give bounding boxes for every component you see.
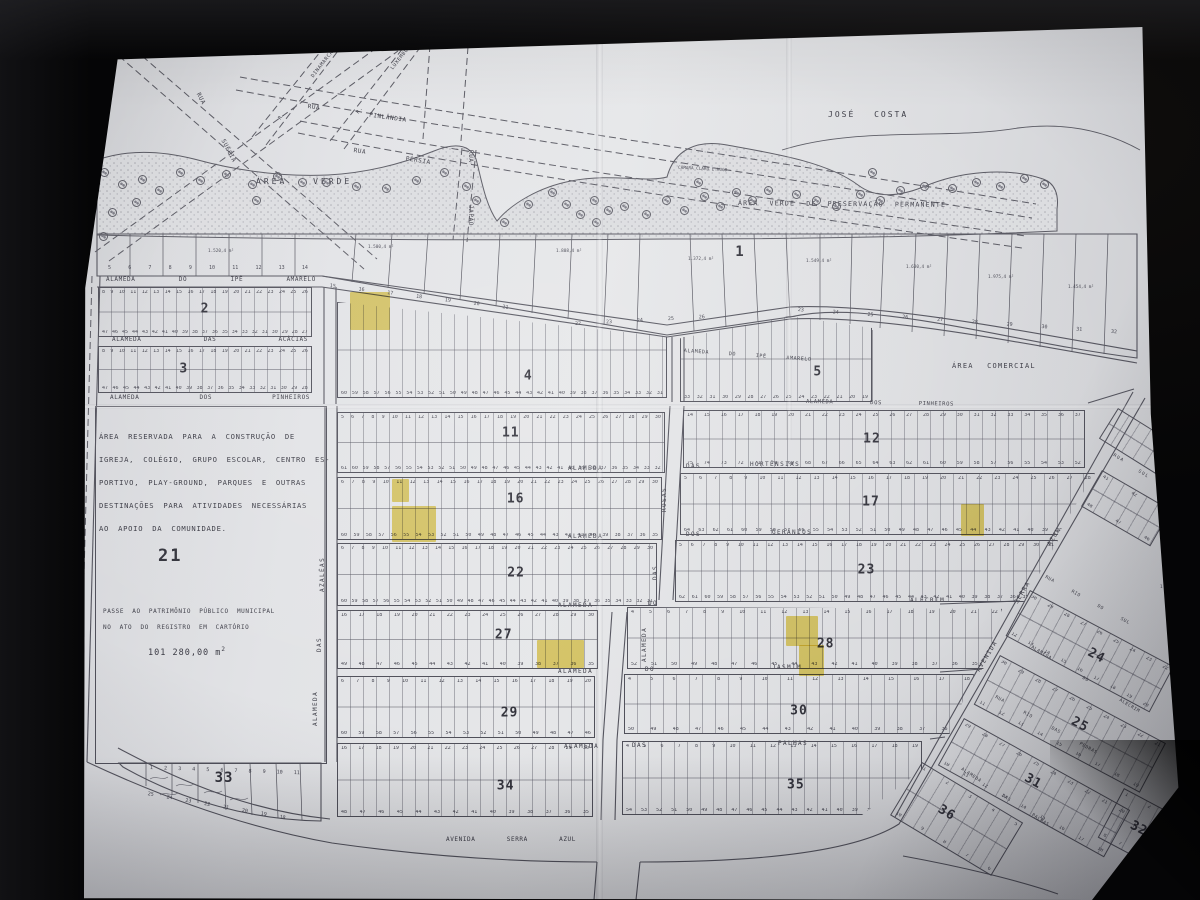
street-label-alameda-das-acacias: ALAMEDADASACÁCIAS	[112, 337, 308, 343]
lot-numbers: 161718192021222324252627282930	[341, 746, 589, 751]
lot-numbers: 123	[1124, 792, 1174, 822]
block-3: 3891011121314151617181920212223242526474…	[98, 346, 312, 393]
tree-icon	[792, 190, 801, 199]
lot-numbers: 333231302928272625242322212019	[684, 395, 868, 400]
lot-numbers: 567891011121314	[108, 266, 308, 271]
lot-numbers: 6789101112131415161718192021222324252627…	[341, 480, 658, 485]
tree-icon	[604, 206, 613, 215]
block-number: 24	[1085, 645, 1108, 667]
tree-icon	[732, 188, 741, 197]
tree-icon	[868, 168, 877, 177]
block-number-1: 1	[735, 244, 744, 260]
lot-numbers: 45678910111213141516171819	[626, 744, 918, 749]
block-number: 17	[862, 494, 880, 509]
highlighted-lot	[392, 506, 436, 542]
lot-numbers: 6059585756555453525150494847464544434241…	[341, 391, 663, 396]
street-label-rua-ne-sul: SUL	[1137, 470, 1150, 480]
lot-numbers: 4847464544434241403938373635	[341, 810, 589, 815]
preservation-area-label: ÁREA VERDE DE PRESERVAÇÃO PERMANENTE	[738, 199, 946, 209]
block-23: 2356789101112131415161718192021222324252…	[675, 540, 1058, 602]
tree-icon	[856, 190, 865, 199]
tree-icon	[896, 186, 905, 195]
lot-area-label: 1.454,4 m²	[1068, 286, 1094, 290]
tree-icon	[100, 168, 109, 177]
street-label-rua-suecia: RUASUÉCIA	[195, 92, 237, 164]
highlighted-lot	[786, 616, 818, 646]
registry-note-line: PASSE AO PATRIMÔNIO PÚBLICO MUNICIPAL	[103, 608, 275, 615]
block-number: 3	[179, 361, 188, 376]
block-number: 27	[495, 627, 513, 642]
highlighted-lot	[799, 645, 824, 676]
lot-numbers: 6059585756555453525150494847464544434241…	[341, 599, 653, 604]
lot-numbers: 5453525150494847464544434241403938373635	[626, 808, 918, 813]
block-22: 2267891011121314151617181920212223242526…	[337, 543, 657, 606]
tree-icon	[716, 202, 725, 211]
lot-numbers: 2524232221201918	[147, 792, 286, 821]
street-label-alameda-das-azaleas-3: ALAMEDA	[313, 691, 319, 726]
block-number: 4	[524, 369, 533, 384]
tree-icon	[248, 180, 257, 189]
tree-icon	[680, 206, 689, 215]
lot-numbers: 2223242526	[575, 315, 705, 327]
highlighted-lot	[961, 504, 984, 536]
tree-icon	[590, 196, 599, 205]
tree-icon	[462, 182, 471, 191]
block-number: 31	[1022, 770, 1045, 792]
block-number: 32	[1127, 818, 1150, 840]
block-number: 16	[507, 491, 525, 506]
block-2: 2891011121314151617181920212223242526474…	[98, 287, 312, 337]
reserved-text-line: IGREJA, COLÉGIO, GRUPO ESCOLAR, CENTRO E…	[99, 455, 330, 464]
street-label-alameda-do-ipe-amarelo-w: ALAMEDADOIPÊAMARELO	[106, 277, 316, 283]
tree-icon	[108, 208, 117, 217]
tree-icon	[500, 218, 509, 227]
tree-icon	[524, 200, 533, 209]
lot-numbers: 1415161718192021222324252627282930313233…	[687, 413, 1081, 418]
tree-icon	[273, 172, 282, 181]
lot-numbers: 6059585756555453525150494847464544434241…	[341, 533, 658, 538]
block-number: 30	[790, 703, 808, 718]
lot-area-label: 1.520,4 m²	[208, 250, 234, 254]
tree-icon	[99, 232, 108, 241]
street-label-rua-luxemburgo: R.LUXEMBURGO	[356, 40, 417, 116]
highlighted-lot	[392, 479, 409, 502]
lot-numbers: 5678910111213141516171819202122232425262…	[679, 543, 1054, 548]
tree-icon	[972, 178, 981, 187]
photo-of-subdivision-map: JOSÉ COSTA ÁREA VERDE ÁREA VERDE DE PRES…	[0, 0, 1200, 900]
lot-numbers: 8765	[1102, 833, 1152, 863]
block-number: 23	[858, 562, 876, 577]
commercial-area-label: ÁREA COMERCIAL	[952, 362, 1036, 370]
lot-numbers: 6463626160595857565554535251504948474645…	[684, 528, 1091, 533]
tree-icon	[176, 168, 185, 177]
tree-icon	[812, 196, 821, 205]
block-16: 1667891011121314151617181920212223242526…	[337, 477, 662, 540]
block-number: 5	[813, 365, 822, 380]
block-17: 1756789101112131415161718192021222324252…	[680, 473, 1095, 535]
block-number: 11	[502, 426, 520, 441]
tree-icon	[440, 168, 449, 177]
lot-numbers: 605958575655545352515049484746	[341, 731, 591, 736]
area-measurement: 101 280,00 m2	[148, 646, 226, 658]
boundary-owner-label: CÂMARA CLARO E HUGO	[678, 167, 727, 174]
tree-icon	[155, 186, 164, 195]
tree-icon	[694, 178, 703, 187]
block-5: 5333231302928272625242322212019	[680, 316, 872, 402]
street-label-alameda-das-azaleas-2: DAS	[317, 637, 323, 652]
tree-icon	[352, 182, 361, 191]
reserved-text-line: PORTIVO, PLAY-GROUND, PARQUES E OUTRAS	[99, 478, 306, 487]
lot-area-label: 1.500,4 m²	[368, 246, 394, 250]
lot-numbers: 6789101112131415161718192021222324252627…	[341, 546, 653, 551]
lot-numbers: 45678910111213141516171819202122	[631, 610, 998, 615]
lot-numbers: 7574737271706968676665646362616059585756…	[687, 461, 1081, 466]
block-number: 22	[507, 566, 525, 581]
tree-icon	[1040, 180, 1049, 189]
lot-area-label: 1.808,4 m²	[556, 250, 582, 254]
tree-icon	[196, 176, 205, 185]
lot-numbers: 4746454443424140393837363534333231302928…	[102, 330, 308, 335]
tree-icon	[642, 210, 651, 219]
block-number: 12	[863, 432, 881, 447]
tree-icon	[764, 186, 773, 195]
street-label-alameda-das-rosas-1: ROSAS	[662, 487, 668, 512]
lot-area-label: 1	[1160, 586, 1163, 590]
registry-note-line: NO ATO DO REGISTRO EM CARTÓRIO	[103, 624, 249, 631]
tree-icon	[620, 202, 629, 211]
block-30: 3045678910111213141516171850494847464544…	[624, 674, 974, 734]
street-label-alameda-das-azaleas-1: AZALÉAS	[320, 557, 326, 592]
tree-icon	[138, 175, 147, 184]
block-number-21: 21	[158, 546, 182, 566]
tree-icon	[118, 180, 127, 189]
street-label-alameda-dos-pinheiros-w: ALAMEDADOSPINHEIROS	[110, 395, 310, 401]
map-annotation-layer: JOSÉ COSTA ÁREA VERDE ÁREA VERDE DE PRES…	[0, 0, 1200, 900]
block-number: 2	[201, 302, 210, 317]
tree-icon	[748, 196, 757, 205]
street-label-avenida-serra-azul: AVENIDASERRAAZUL	[446, 837, 576, 843]
highlighted-lot	[350, 292, 390, 330]
tree-icon	[562, 200, 571, 209]
block-11: 1156789101112131415161718192021222324252…	[337, 412, 665, 473]
tree-icon	[322, 178, 331, 187]
block-number: 34	[497, 778, 515, 793]
block-number-33: 33	[215, 770, 234, 786]
lot-numbers: 4746454443424140393837363534333231302928	[102, 386, 308, 391]
tree-icon	[948, 184, 957, 193]
tree-icon	[662, 196, 671, 205]
tree-icon	[876, 196, 885, 205]
lot-area-label: 1.975,4 m²	[988, 276, 1014, 280]
block-number: 35	[787, 778, 805, 793]
tree-icon	[920, 182, 929, 191]
tree-icon	[298, 178, 307, 187]
lot-numbers: 5678910111213141516171819202122232425262…	[341, 415, 661, 420]
block-number: 29	[501, 706, 519, 721]
lot-numbers: 6261605958575655545352515049484746454443…	[679, 595, 1054, 600]
lot-numbers: 891011121314151617181920212223242526	[102, 290, 308, 295]
lot-numbers: 5678910111213141516171819202122232425262…	[684, 476, 1091, 481]
block-12: 1214151617181920212223242526272829303132…	[683, 410, 1085, 468]
block	[1099, 408, 1177, 476]
tree-icon	[472, 196, 481, 205]
tree-icon	[412, 176, 421, 185]
lot-numbers: 456789101112131415161718	[628, 677, 970, 682]
tree-icon	[996, 182, 1005, 191]
lot-area-label: 1.630,4 m²	[906, 266, 932, 270]
lot-numbers: 161718192021222324252627282930	[341, 613, 594, 618]
highlighted-lot	[537, 640, 584, 668]
tree-icon	[700, 192, 709, 201]
tree-icon	[382, 184, 391, 193]
tree-icon	[592, 218, 601, 227]
tree-icon	[252, 196, 261, 205]
tree-icon	[1020, 174, 1029, 183]
block-number: 25	[1069, 714, 1092, 736]
street-label-rua-persia: RUAPÉRSIA	[353, 148, 431, 166]
tree-icon	[222, 170, 231, 179]
tree-icon	[832, 202, 841, 211]
street-label-rua-ne: RUA	[1112, 454, 1125, 464]
reserved-text-line: DESTINAÇÕES PARA ATIVIDADES NECESSÁRIAS	[99, 501, 307, 510]
lot-numbers: 6160595857565554535251504948474645444342…	[341, 466, 661, 471]
lot-numbers: 50494847464544434241403938373635	[628, 727, 970, 732]
block-34: 3416171819202122232425262728293048474645…	[337, 743, 593, 817]
lot-numbers: 484746	[1086, 502, 1151, 542]
lot-area-label: 1.372,4 m²	[688, 258, 714, 262]
reserved-text-line: ÁREA RESERVADA PARA A CONSTRUÇÃO DE	[99, 432, 295, 441]
block-35: 3545678910111213141516171819545352515049…	[622, 741, 922, 815]
paper-map: JOSÉ COSTA ÁREA VERDE ÁREA VERDE DE PRES…	[0, 0, 1200, 900]
block-29: 2967891011121314151617181920605958575655…	[337, 676, 595, 738]
reserved-text-line: AO APOIO DA COMUNIDADE.	[99, 524, 227, 533]
lot-numbers: 414243	[1102, 474, 1167, 514]
tree-icon	[548, 188, 557, 197]
lot-numbers: 67891011121314151617181920	[341, 679, 591, 684]
tree-icon	[576, 210, 585, 219]
street-label-alameda-do-jasmim-1: ALAMEDA	[558, 669, 593, 675]
block-number: 36	[935, 802, 958, 824]
tree-icon	[132, 198, 141, 207]
lot-area-label: 1.549,4 m²	[806, 260, 832, 264]
block: 414243484746	[1081, 470, 1171, 546]
lot-numbers: 891011121314151617181920212223242526	[102, 349, 308, 354]
owner-label: JOSÉ COSTA	[828, 110, 908, 119]
